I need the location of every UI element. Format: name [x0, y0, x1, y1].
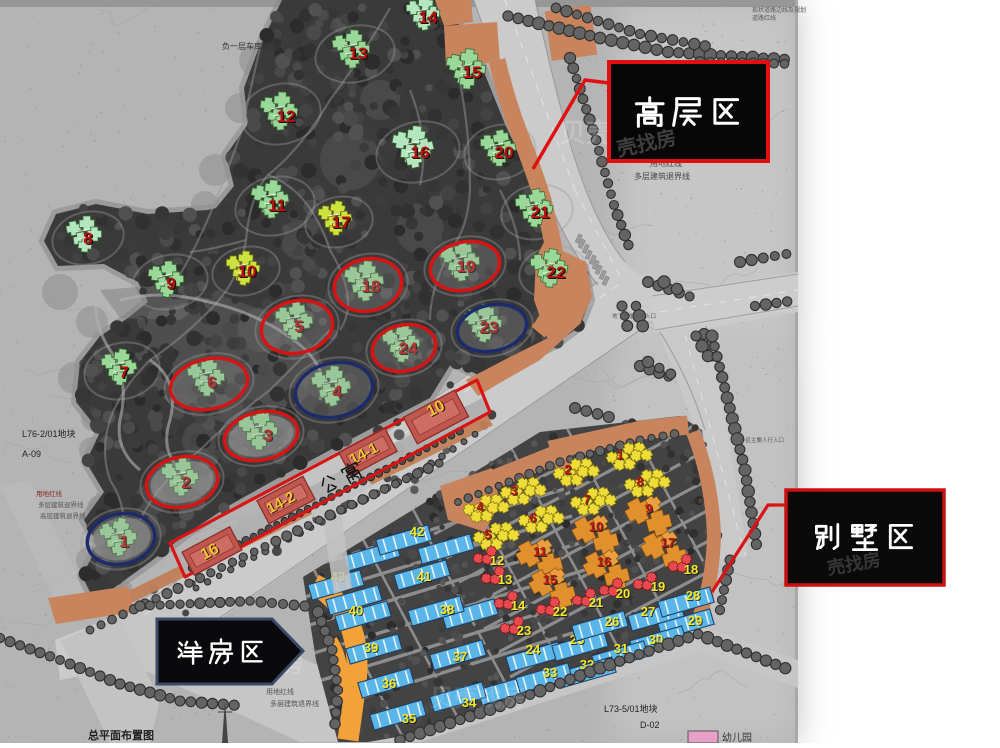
svg-text:20: 20: [616, 586, 630, 601]
svg-text:23: 23: [517, 623, 531, 638]
svg-text:用地红线: 用地红线: [266, 687, 294, 696]
svg-text:22: 22: [547, 263, 566, 282]
svg-text:28: 28: [686, 588, 700, 603]
svg-text:L73-5/01地块: L73-5/01地块: [604, 703, 658, 714]
svg-text:10: 10: [589, 519, 603, 534]
svg-text:负一层车库范围: 负一层车库范围: [222, 41, 278, 51]
svg-text:37: 37: [453, 649, 467, 664]
svg-text:6: 6: [529, 510, 536, 525]
svg-text:L76-2/01地块: L76-2/01地块: [22, 428, 76, 439]
svg-text:小区主要人行入口: 小区主要人行入口: [740, 436, 784, 444]
svg-text:18: 18: [684, 562, 698, 577]
svg-text:14: 14: [419, 8, 438, 27]
svg-text:8: 8: [83, 229, 92, 248]
svg-text:多层建筑退界线: 多层建筑退界线: [270, 699, 319, 708]
svg-text:22: 22: [553, 604, 567, 619]
svg-text:38: 38: [440, 602, 454, 617]
svg-text:8: 8: [636, 474, 643, 489]
svg-text:10: 10: [238, 262, 257, 281]
svg-text:20: 20: [495, 143, 514, 162]
svg-text:高层建筑退界线: 高层建筑退界线: [40, 511, 86, 520]
svg-text:4: 4: [476, 499, 484, 514]
svg-text:2: 2: [564, 462, 571, 477]
svg-text:9: 9: [166, 274, 175, 293]
svg-text:3: 3: [510, 483, 517, 498]
svg-text:35: 35: [402, 711, 416, 726]
svg-text:7: 7: [119, 363, 128, 382]
svg-text:11: 11: [533, 544, 547, 559]
svg-text:29: 29: [688, 613, 702, 628]
svg-text:A-09: A-09: [22, 449, 41, 459]
svg-text:7: 7: [583, 492, 590, 507]
svg-text:9: 9: [645, 501, 652, 516]
svg-text:26: 26: [605, 614, 619, 629]
svg-text:5: 5: [484, 527, 491, 542]
svg-text:16: 16: [411, 143, 430, 162]
svg-text:12: 12: [277, 107, 296, 126]
svg-text:总平面布置图: 总平面布置图: [88, 728, 154, 742]
svg-text:多层建筑退界线: 多层建筑退界线: [634, 171, 690, 181]
svg-text:D-02: D-02: [640, 720, 660, 730]
svg-text:15: 15: [543, 572, 557, 587]
svg-text:现状道路边线及规划: 现状道路边线及规划: [752, 6, 806, 14]
svg-text:33: 33: [543, 665, 557, 680]
svg-text:24: 24: [526, 642, 541, 657]
svg-text:41: 41: [417, 569, 431, 584]
svg-text:16: 16: [597, 554, 611, 569]
svg-text:地下室车行出入口: 地下室车行出入口: [612, 312, 656, 320]
svg-text:14: 14: [511, 598, 526, 613]
svg-text:1: 1: [616, 447, 623, 462]
svg-text:36: 36: [382, 676, 396, 691]
svg-text:19: 19: [651, 579, 665, 594]
svg-text:15: 15: [463, 63, 482, 82]
svg-text:21: 21: [531, 203, 550, 222]
svg-text:39: 39: [364, 640, 378, 655]
svg-text:13: 13: [498, 572, 512, 587]
svg-text:42: 42: [410, 524, 424, 539]
svg-text:17: 17: [332, 213, 351, 232]
svg-text:幼儿园: 幼儿园: [722, 731, 752, 743]
svg-text:40: 40: [349, 603, 363, 618]
svg-text:13: 13: [349, 44, 368, 63]
svg-text:多层建筑退界线: 多层建筑退界线: [38, 500, 84, 509]
svg-text:11: 11: [268, 196, 286, 215]
svg-text:27: 27: [641, 604, 655, 619]
svg-text:17: 17: [661, 535, 675, 550]
svg-text:道路红线: 道路红线: [752, 14, 776, 22]
svg-text:12: 12: [490, 553, 504, 568]
svg-text:贝壳找房: 贝壳找房: [430, 684, 526, 712]
svg-text:21: 21: [589, 595, 603, 610]
svg-text:用地红线: 用地红线: [36, 489, 63, 498]
